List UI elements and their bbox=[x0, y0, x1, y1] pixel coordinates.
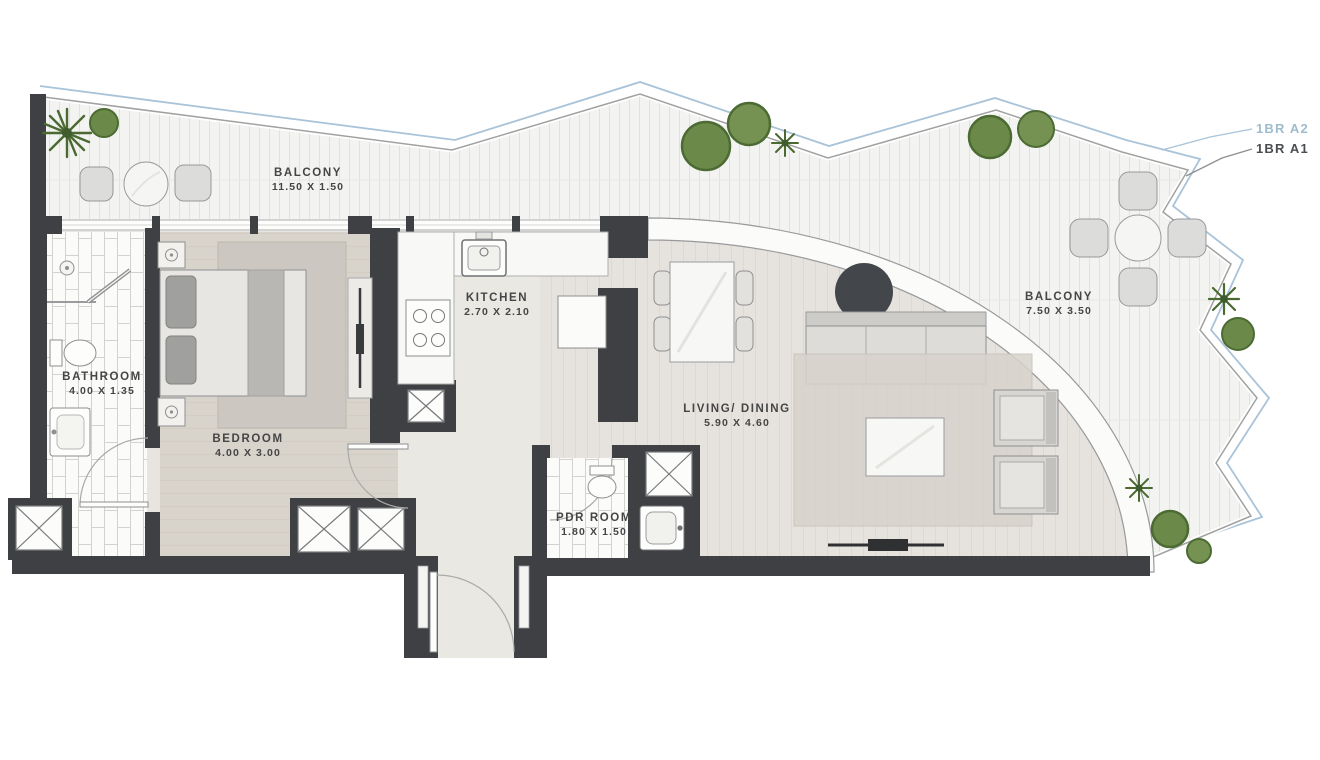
room-name: LIVING/ DINING bbox=[683, 402, 790, 416]
room-dims: 1.80 X 1.50 bbox=[556, 525, 632, 539]
room-label-bedroom: BEDROOM 4.00 X 3.00 bbox=[212, 432, 283, 460]
room-label-kitchen: KITCHEN 2.70 X 2.10 bbox=[464, 291, 530, 319]
room-name: BATHROOM bbox=[62, 370, 142, 384]
stove bbox=[406, 300, 450, 356]
balcony-chair bbox=[1070, 219, 1108, 257]
room-label-balcony-right: BALCONY 7.50 X 3.50 bbox=[1025, 290, 1093, 318]
bush-plant bbox=[728, 103, 770, 145]
pdr-toilet bbox=[588, 466, 616, 498]
bush-plant bbox=[1152, 511, 1188, 547]
room-dims: 7.50 X 3.50 bbox=[1025, 304, 1093, 318]
balcony-chair bbox=[80, 167, 113, 201]
floor-plan-canvas: BALCONY 11.50 X 1.50 BATHROOM 4.00 X 1.3… bbox=[0, 0, 1320, 760]
room-name: PDR ROOM bbox=[556, 511, 632, 525]
balcony-chair bbox=[175, 165, 211, 201]
balcony-left-furniture bbox=[80, 162, 211, 206]
variant-label-1br-a2[interactable]: 1BR A2 bbox=[1256, 121, 1309, 136]
shaft bbox=[408, 390, 444, 422]
balcony-chair bbox=[1168, 219, 1206, 257]
dining-chair bbox=[736, 317, 753, 351]
palm-plant bbox=[43, 109, 91, 157]
balcony-chair bbox=[1119, 172, 1157, 210]
room-name: BALCONY bbox=[272, 166, 344, 180]
palm-plant bbox=[1209, 284, 1239, 314]
bed bbox=[160, 270, 306, 396]
window-band bbox=[46, 219, 606, 231]
armchair bbox=[994, 456, 1058, 514]
dining-chair bbox=[654, 271, 671, 305]
balcony-table bbox=[1115, 215, 1161, 261]
room-name: BALCONY bbox=[1025, 290, 1093, 304]
room-dims: 11.50 X 1.50 bbox=[272, 180, 344, 194]
pdr-washbasin bbox=[640, 506, 684, 550]
wardrobe bbox=[348, 278, 372, 398]
bush-plant bbox=[682, 122, 730, 170]
pillow bbox=[166, 336, 196, 384]
shaft bbox=[358, 508, 404, 550]
toilet bbox=[50, 340, 96, 366]
shaft bbox=[298, 506, 350, 552]
balcony-chair bbox=[1119, 268, 1157, 306]
entry-door bbox=[418, 558, 529, 654]
fridge bbox=[558, 296, 606, 348]
bush-plant bbox=[969, 116, 1011, 158]
bush-plant bbox=[90, 109, 118, 137]
bush-plant bbox=[1018, 111, 1054, 147]
bush-plant bbox=[1187, 539, 1211, 563]
nightstand bbox=[158, 242, 185, 268]
nightstand bbox=[158, 398, 185, 426]
room-name: BEDROOM bbox=[212, 432, 283, 446]
room-dims: 5.90 X 4.60 bbox=[683, 416, 790, 430]
shaft bbox=[646, 452, 692, 496]
floor-plan bbox=[0, 0, 1320, 760]
dining-chair bbox=[654, 317, 671, 351]
room-dims: 2.70 X 2.10 bbox=[464, 305, 530, 319]
balcony-table bbox=[124, 162, 168, 206]
bush-plant bbox=[1222, 318, 1254, 350]
room-label-pdr-room: PDR ROOM 1.80 X 1.50 bbox=[556, 511, 632, 539]
palm-plant bbox=[772, 130, 798, 156]
shaft bbox=[16, 506, 62, 550]
pillow bbox=[166, 276, 196, 328]
palm-plant bbox=[1126, 475, 1152, 501]
variant-label-1br-a1[interactable]: 1BR A1 bbox=[1256, 141, 1309, 156]
dining-chair bbox=[736, 271, 753, 305]
room-dims: 4.00 X 3.00 bbox=[212, 446, 283, 460]
armchair bbox=[994, 390, 1058, 446]
vanity-sink bbox=[50, 408, 90, 456]
room-name: KITCHEN bbox=[464, 291, 530, 305]
room-dims: 4.00 X 1.35 bbox=[62, 384, 142, 398]
room-label-living-dining: LIVING/ DINING 5.90 X 4.60 bbox=[683, 402, 790, 430]
room-label-balcony-top: BALCONY 11.50 X 1.50 bbox=[272, 166, 344, 194]
room-label-bathroom: BATHROOM 4.00 X 1.35 bbox=[62, 370, 142, 398]
